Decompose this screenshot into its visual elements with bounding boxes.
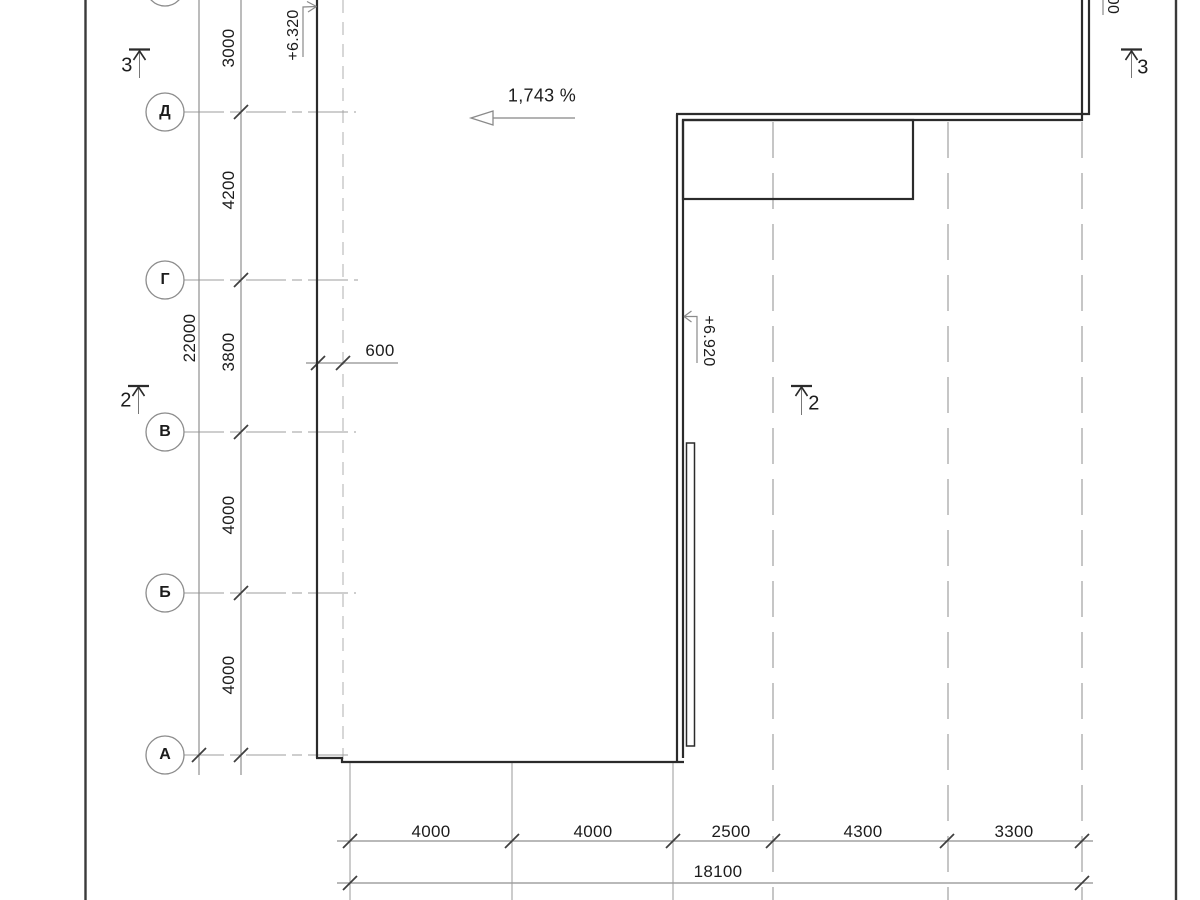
plan-geometry — [0, 0, 1200, 900]
slope-label: 1,743 % — [508, 86, 576, 107]
elevation-label-cropped: 00 — [1103, 0, 1121, 14]
grid-centerlines — [343, 0, 1082, 900]
dim-left-3000: 3000 — [219, 28, 239, 67]
axis-label-a: А — [159, 746, 171, 764]
roof-outline — [316, 0, 1090, 763]
dim-bottom-total-18100: 18100 — [694, 862, 743, 882]
axis-label-b: Б — [159, 584, 171, 602]
dim-left-4000a: 4000 — [219, 495, 239, 534]
elevation-leader-left — [303, 2, 317, 58]
parapet-sliver — [687, 443, 695, 746]
dimension-ticks — [192, 105, 1089, 890]
slope-arrow-icon — [471, 111, 575, 125]
extension-lines — [350, 762, 673, 900]
dim-bottom-2500: 2500 — [711, 822, 750, 842]
drawing-sheet: Д Г В Б А 3000 4200 3800 4000 4000 22000… — [0, 0, 1200, 900]
axis-label-d: Д — [159, 103, 170, 121]
dim-bottom-4300: 4300 — [843, 822, 882, 842]
section-number-top-right: 3 — [1137, 57, 1148, 80]
dim-bottom-3300: 3300 — [994, 822, 1033, 842]
axis-bubble-cropped — [146, 0, 184, 6]
dim-left-4200: 4200 — [219, 170, 239, 209]
roof-opening-rect — [683, 120, 913, 199]
axis-label-v: В — [159, 423, 171, 441]
elevation-leader-right — [684, 311, 697, 363]
dim-left-total-22000: 22000 — [180, 314, 200, 363]
dim-left-4000b: 4000 — [219, 655, 239, 694]
section-number-mid-left: 2 — [120, 390, 131, 413]
dim-offset-600: 600 — [365, 341, 394, 361]
section-number-mid-right: 2 — [808, 393, 819, 416]
dim-bottom-4000b: 4000 — [573, 822, 612, 842]
axis-label-g: Г — [160, 271, 169, 289]
section-mark-arrows — [128, 50, 1142, 416]
section-number-top-left: 3 — [121, 55, 132, 78]
dim-left-3800: 3800 — [219, 332, 239, 371]
elevation-label-right: +6.920 — [699, 315, 717, 366]
dim-bottom-4000a: 4000 — [411, 822, 450, 842]
elevation-label-left: +6.320 — [285, 9, 303, 60]
axis-row-lines — [184, 112, 358, 755]
